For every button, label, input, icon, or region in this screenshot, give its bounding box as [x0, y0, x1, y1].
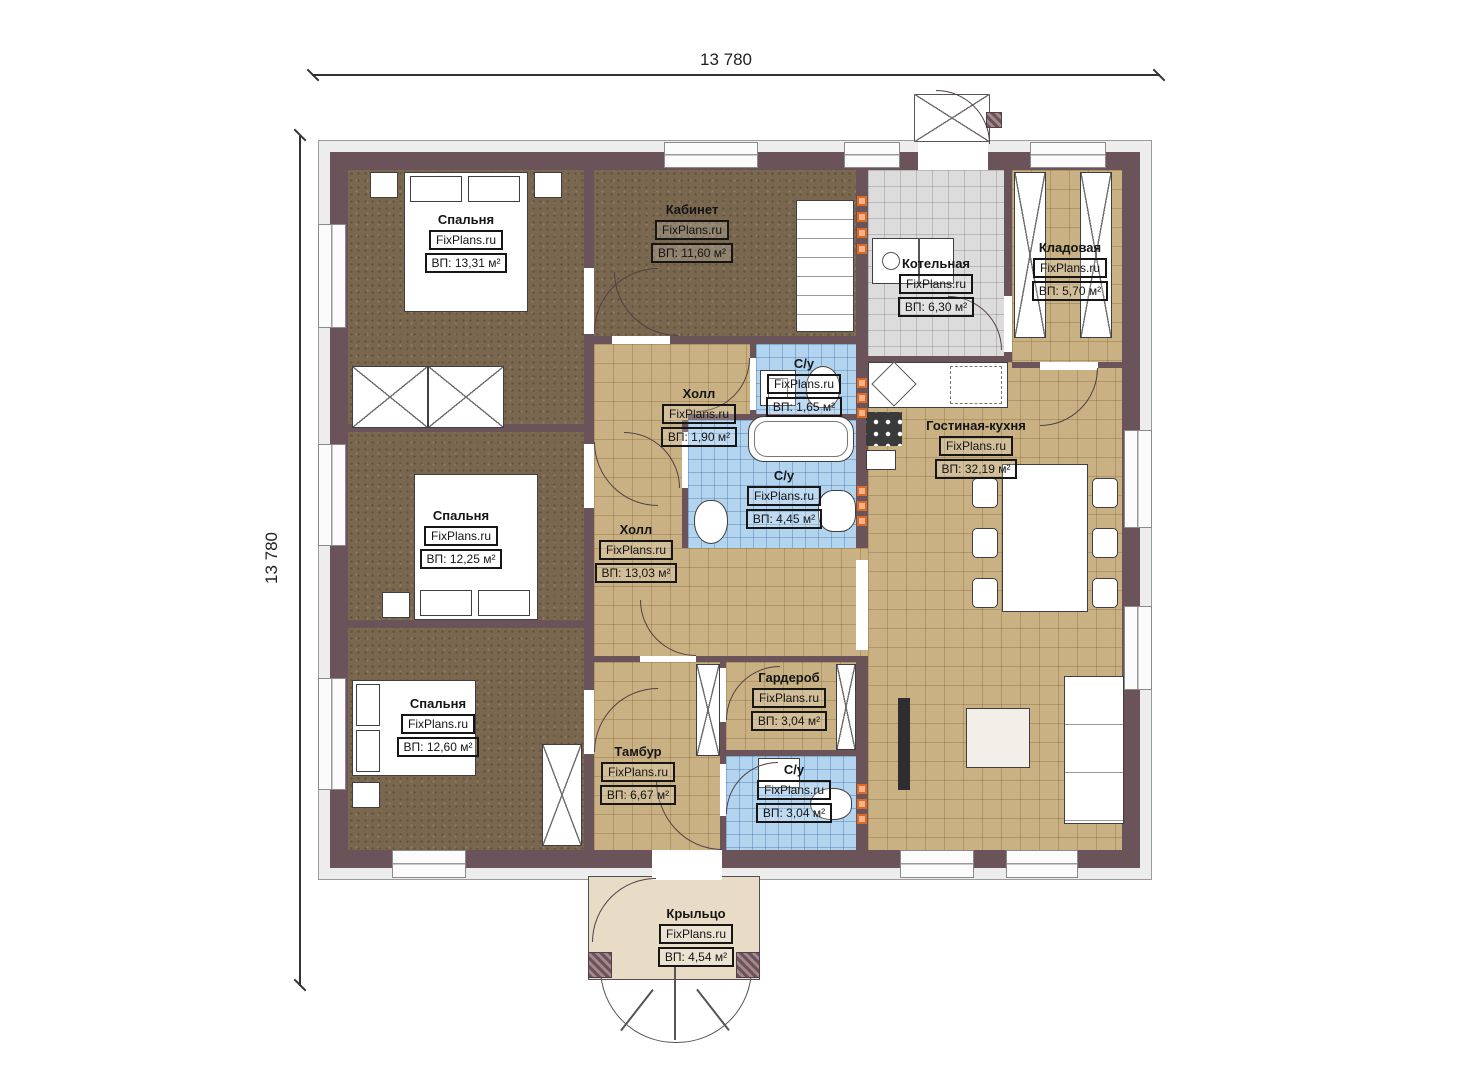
watermark: FixPlans.ru	[767, 374, 841, 394]
room-name: С/у	[774, 468, 794, 483]
room-label-bedroom-2: Спальня FixPlans.ru ВП: 12,25 м²	[392, 508, 530, 569]
dining-chair	[972, 478, 998, 508]
door-gap-office	[612, 336, 670, 344]
window-bedroom-1	[318, 224, 346, 328]
room-area: ВП: 4,54 м²	[658, 947, 734, 967]
room-area: ВП: 4,45 м²	[746, 509, 822, 529]
door-gap-vestibule	[640, 656, 696, 662]
wall-bedroom2-bedroom3	[348, 620, 584, 628]
dining-chair	[972, 528, 998, 558]
room-area: ВП: 1,90 м²	[661, 427, 737, 447]
room-name: Гостиная-кухня	[926, 418, 1026, 433]
room-label-pantry: Кладовая FixPlans.ru ВП: 5,70 м²	[1002, 240, 1138, 301]
dining-chair	[1092, 578, 1118, 608]
nightstand	[352, 782, 380, 808]
watermark: FixPlans.ru	[1033, 258, 1107, 278]
porch-steps-fan	[600, 966, 752, 1043]
door-gap-hall-living	[856, 560, 868, 650]
room-name: Крыльцо	[666, 906, 725, 921]
room-name: Холл	[620, 522, 653, 537]
room-area: ВП: 6,30 м²	[898, 297, 974, 317]
room-area: ВП: 13,03 м²	[595, 563, 678, 583]
nightstand	[534, 172, 562, 198]
room-name: Кабинет	[666, 202, 719, 217]
window-bedroom-2	[318, 444, 346, 546]
watermark: FixPlans.ru	[429, 230, 503, 250]
entry-step-hatch	[986, 112, 1002, 128]
front-door-opening	[652, 850, 722, 880]
bathtub-inner	[754, 421, 848, 457]
room-label-bedroom-3: Спальня FixPlans.ru ВП: 12,60 м²	[368, 696, 508, 757]
window-bedroom-3-south	[392, 850, 466, 878]
room-label-bathroom-2: С/у FixPlans.ru ВП: 4,45 м²	[716, 468, 852, 529]
room-label-wardrobe: Гардероб FixPlans.ru ВП: 3,04 м²	[722, 670, 856, 731]
watermark: FixPlans.ru	[601, 762, 675, 782]
window-office	[664, 142, 758, 168]
room-label-porch: Крыльцо FixPlans.ru ВП: 4,54 м²	[626, 906, 766, 967]
room-label-bedroom-1: Спальня FixPlans.ru ВП: 13,31 м²	[396, 212, 536, 273]
room-label-hall-main: Холл FixPlans.ru ВП: 13,03 м²	[570, 522, 702, 583]
bed-2-pillow	[420, 590, 472, 616]
riser-marker	[857, 486, 867, 496]
room-name: Спальня	[410, 696, 466, 711]
riser-marker	[857, 501, 867, 511]
floor-plan: 13 780 13 780	[0, 0, 1473, 1080]
nightstand	[370, 172, 398, 198]
watermark: FixPlans.ru	[599, 540, 673, 560]
watermark: FixPlans.ru	[747, 486, 821, 506]
room-name: Гардероб	[758, 670, 819, 685]
room-name: Тамбур	[614, 744, 661, 759]
wall-wardrobe-bath3	[726, 750, 856, 756]
window-boiler	[844, 142, 900, 168]
dimension-line-left	[299, 136, 301, 986]
room-label-vestibule: Тамбур FixPlans.ru ВП: 6,67 м²	[572, 744, 704, 805]
watermark: FixPlans.ru	[655, 220, 729, 240]
riser-marker	[857, 228, 867, 238]
watermark: FixPlans.ru	[401, 714, 475, 734]
room-area: ВП: 13,31 м²	[425, 253, 508, 273]
room-label-living-kitchen: Гостиная-кухня FixPlans.ru ВП: 32,19 м²	[900, 418, 1052, 479]
window-living-south-1	[900, 850, 974, 878]
room-area: ВП: 6,67 м²	[600, 785, 676, 805]
dimension-line-top	[312, 74, 1160, 76]
stove	[866, 412, 902, 446]
watermark: FixPlans.ru	[899, 274, 973, 294]
riser-marker	[857, 212, 867, 222]
porch-side-hatch	[588, 952, 612, 978]
dining-table	[1002, 464, 1088, 612]
boiler-entry-opening	[918, 141, 988, 170]
room-name: Спальня	[438, 212, 494, 227]
room-name: Холл	[683, 386, 716, 401]
riser-marker	[857, 196, 867, 206]
room-name: С/у	[784, 762, 804, 777]
room-label-bathroom-3: С/у FixPlans.ru ВП: 3,04 м²	[728, 762, 860, 823]
dishwasher	[866, 450, 896, 470]
watermark: FixPlans.ru	[752, 688, 826, 708]
room-area: ВП: 32,19 м²	[935, 459, 1018, 479]
porch-step-spoke	[674, 966, 676, 1040]
room-area: ВП: 3,04 м²	[756, 803, 832, 823]
watermark: FixPlans.ru	[757, 780, 831, 800]
room-name: С/у	[794, 356, 814, 371]
watermark: FixPlans.ru	[662, 404, 736, 424]
tv-unit	[898, 698, 910, 790]
door-gap-boiler	[1004, 296, 1012, 352]
room-label-boiler: Котельная FixPlans.ru ВП: 6,30 м²	[868, 256, 1004, 317]
vestibule-closet	[696, 664, 720, 756]
coffee-table	[966, 708, 1030, 768]
watermark: FixPlans.ru	[659, 924, 733, 944]
room-label-office: Кабинет FixPlans.ru ВП: 11,60 м²	[624, 202, 760, 263]
room-name: Кладовая	[1039, 240, 1101, 255]
riser-marker	[857, 244, 867, 254]
bed-2-pillow	[478, 590, 530, 616]
bed-1-pillow	[468, 176, 520, 202]
sofa	[1064, 676, 1124, 824]
room-area: ВП: 3,04 м²	[751, 711, 827, 731]
dining-chair	[972, 578, 998, 608]
dimension-left-label: 13 780	[262, 532, 282, 584]
room-area: ВП: 5,70 м²	[1032, 281, 1108, 301]
room-area: ВП: 12,25 м²	[420, 549, 503, 569]
riser-marker	[857, 516, 867, 526]
nightstand	[382, 592, 410, 618]
dimension-top-label: 13 780	[700, 50, 752, 70]
dining-chair	[1092, 478, 1118, 508]
window-living-south-2	[1006, 850, 1078, 878]
door-gap-bedroom-2	[584, 444, 594, 508]
dining-chair	[1092, 528, 1118, 558]
kitchen-counter-dashed	[950, 366, 1002, 404]
watermark: FixPlans.ru	[424, 526, 498, 546]
room-area: ВП: 11,60 м²	[651, 243, 733, 263]
window-living-east-1	[1124, 430, 1152, 528]
window-pantry	[1030, 142, 1106, 168]
room-area: ВП: 1,65 м²	[766, 397, 842, 417]
door-gap-bedroom-1	[584, 268, 594, 334]
wall-hall-south	[594, 656, 868, 662]
room-name: Спальня	[433, 508, 489, 523]
window-bedroom-3	[318, 678, 346, 790]
wardrobe-cabinet	[428, 366, 504, 428]
room-label-bathroom-1: С/у FixPlans.ru ВП: 1,65 м²	[744, 356, 864, 417]
watermark: FixPlans.ru	[939, 436, 1013, 456]
wardrobe-cabinet	[352, 366, 428, 428]
bed-1-pillow	[410, 176, 462, 202]
window-living-east-2	[1124, 606, 1152, 690]
room-area: ВП: 12,60 м²	[397, 737, 480, 757]
room-name: Котельная	[902, 256, 970, 271]
office-sofa	[796, 200, 854, 332]
